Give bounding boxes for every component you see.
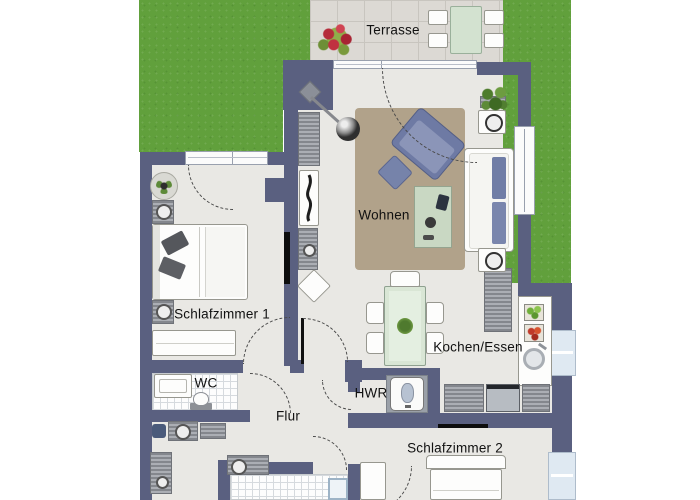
grass-left [139,0,283,152]
dining-chair [426,302,444,324]
room-label-wohnen: Wohnen [358,208,409,223]
coffee-table [414,186,452,248]
cutting-board-red [524,324,544,342]
cutting-board-green [524,304,544,321]
terrace-chair [484,10,504,25]
cooking-pot-icon [523,348,545,370]
floor-lamp-shade [336,117,360,141]
living-window-east [514,126,535,215]
dining-chair [366,332,384,354]
room-label-hwr: HWR [355,386,388,401]
dining-chair [390,271,420,287]
terrace-chair [484,33,504,48]
potted-plant [478,83,510,115]
media-cabinet [298,112,320,166]
room-label-schlafzimmer2: Schlafzimmer 2 [407,441,503,456]
tv-wall-mounted-bed2 [438,424,488,428]
room-label-flur: Flur [276,409,300,424]
dining-chair [366,302,384,324]
bed2-body [430,469,502,500]
hall-item [152,424,166,438]
sofa-white [464,148,514,252]
kitchen-tall-cabinet [484,268,512,332]
nightstand-lamp-icon [156,204,172,220]
dresser [152,330,236,356]
wall-right-living [518,213,531,283]
room-label-terrasse: Terrasse [366,23,419,38]
bedroom2-window-east [548,452,576,500]
kitchen-stove [486,384,520,412]
wall-left-exterior [140,152,152,500]
nightstand-lamp-icon [156,304,172,320]
lowboard-knob-icon [303,244,316,257]
guitar-stand [299,170,319,226]
guitar-icon [300,171,318,225]
room-label-schlafzimmer1: Schlafzimmer 1 [174,307,270,322]
grass-top-mid [283,0,310,60]
speaker-cone-icon [485,252,503,270]
wc-toilet [188,392,214,412]
speaker-cone-icon [175,424,191,440]
room-label-wc: WC [195,376,218,391]
bedroom1-garden-door [185,151,268,165]
kitchen-base-cabinet [444,384,484,412]
shower-tray [328,478,348,500]
wall-right-living [518,62,531,128]
wall-bedroom1-south [152,360,243,373]
terrace-chair [428,33,448,48]
bed2-headboard [426,455,506,469]
wall-shaft-block [265,178,288,202]
wall-step-east [518,283,572,296]
terrace-table [450,6,482,54]
terrace-chair [428,10,448,25]
wall-bedroom2-west [348,464,360,500]
kitchen-appliance [522,384,550,412]
dining-plant-icon [397,318,413,334]
cabinet-knob-icon [156,476,169,489]
hall-cabinet-small [200,423,226,439]
kitchen-window-east [548,330,576,376]
flower-bush [316,20,358,60]
floorplan: Terrasse Wohnen Schlafzimmer 1 Kochen/Es… [0,0,700,500]
sideboard-lamp-icon [231,459,247,475]
speaker-cone-icon [485,114,503,132]
wc-sink [154,374,192,398]
washing-machine [390,377,424,411]
plant-icon [156,178,172,194]
room-label-kochen-essen: Kochen/Essen [433,340,522,355]
wall-right-exterior [552,296,572,332]
tv-wall-mounted [284,232,290,284]
